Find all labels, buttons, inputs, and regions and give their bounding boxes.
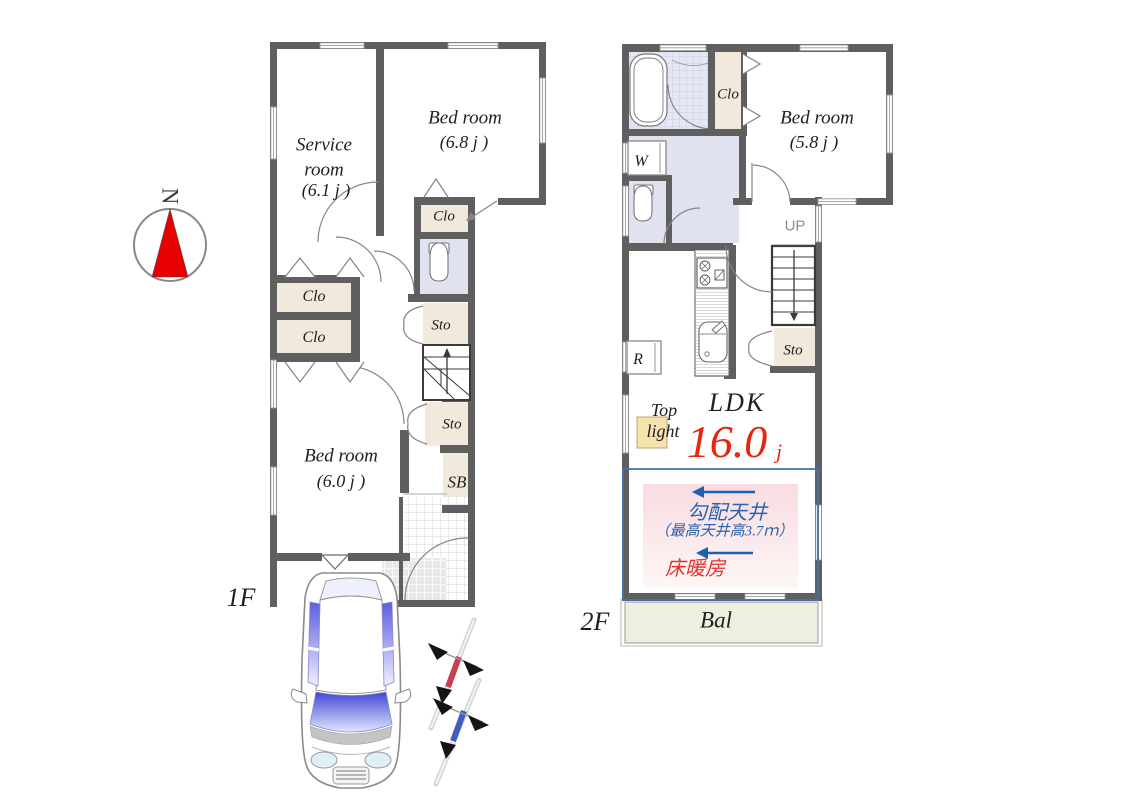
closet-upper-label: Clo bbox=[302, 289, 325, 305]
compass-icon bbox=[134, 209, 206, 281]
closet2f-label: Clo bbox=[717, 88, 739, 103]
storage-lower-label: Sto bbox=[442, 418, 461, 433]
floorplan-canvas: N 1F Service room (6.1 j ) Bed room (6.8… bbox=[0, 0, 1123, 794]
storage-upper-label: Sto bbox=[431, 319, 450, 334]
max-ceiling-height-label: （最高天井高3.7ｍ） bbox=[655, 525, 794, 540]
fridge-label: R bbox=[633, 352, 643, 368]
washer-label: W bbox=[634, 154, 647, 170]
balcony-label: Bal bbox=[700, 609, 732, 632]
storage2f-label: Sto bbox=[783, 344, 802, 359]
bedroom68-name: Bed room bbox=[428, 109, 502, 128]
utility-pole-marker-red bbox=[428, 620, 484, 728]
floor2-label: 2F bbox=[581, 609, 610, 635]
sink-icon bbox=[699, 321, 727, 362]
top-light-label-1: Top bbox=[651, 401, 677, 419]
floor1-label: 1F bbox=[227, 585, 256, 611]
bedroom60-size: (6.0 j ) bbox=[317, 472, 366, 490]
floor1-toilet-icon bbox=[429, 243, 449, 281]
compass-north-label: N bbox=[159, 188, 182, 205]
stairs-up-label: UP bbox=[785, 219, 806, 234]
bedroom60-name: Bed room bbox=[304, 447, 378, 466]
floor1-plan bbox=[270, 42, 546, 607]
top-light-label-2: light bbox=[646, 422, 679, 440]
closet-hall-label: Clo bbox=[433, 210, 455, 225]
bedroom68-size: (6.8 j ) bbox=[440, 133, 489, 151]
floor2-stairs bbox=[772, 246, 815, 325]
fridge-box bbox=[627, 341, 661, 374]
bedroom58-size: (5.8 j ) bbox=[790, 133, 839, 151]
service-room-name-2: room bbox=[304, 161, 343, 180]
stove-icon bbox=[697, 258, 727, 288]
ldk-unit: j bbox=[776, 442, 782, 463]
floor2-plan bbox=[621, 44, 893, 646]
floor-heating-label: 床暖房 bbox=[665, 559, 725, 579]
kitchen-counter bbox=[695, 250, 729, 376]
service-room-size: (6.1 j ) bbox=[302, 181, 351, 199]
floorplan-drawing bbox=[0, 0, 1123, 794]
sloped-ceiling-label: 勾配天井 bbox=[687, 503, 767, 523]
floor2-toilet-icon bbox=[634, 185, 653, 221]
ldk-size: 16.0 bbox=[687, 419, 768, 465]
ldk-name: LDK bbox=[709, 390, 766, 416]
floor1-stairs bbox=[423, 345, 470, 400]
car-topview bbox=[291, 573, 411, 788]
shoe-box-label: SB bbox=[448, 474, 467, 491]
closet-lower-label: Clo bbox=[302, 330, 325, 346]
service-room-name-1: Service bbox=[296, 136, 352, 155]
bedroom58-name: Bed room bbox=[780, 109, 854, 128]
